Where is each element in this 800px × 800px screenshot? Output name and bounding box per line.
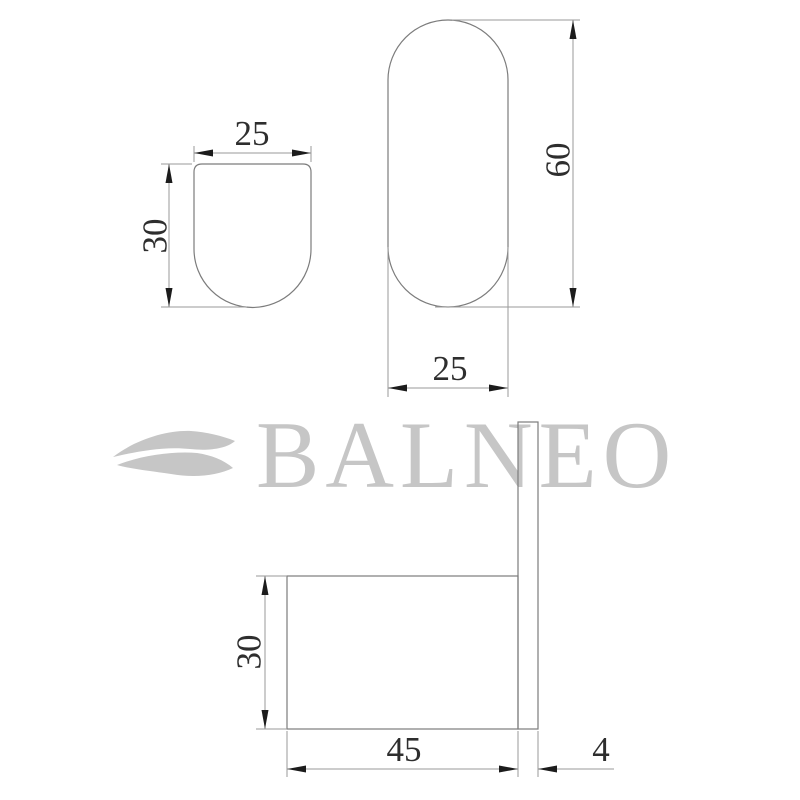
front-view: 25 30: [136, 114, 312, 307]
dimension-side-thickness: 4: [538, 730, 614, 777]
dimension-front-width: 25: [194, 114, 311, 162]
arrow-down-icon: [166, 288, 173, 307]
dim-label-side-thickness: 4: [592, 730, 610, 769]
arrow-right-icon: [292, 150, 311, 157]
arrow-down-icon: [570, 288, 577, 307]
arrow-up-icon: [570, 20, 577, 39]
arrow-down-icon: [262, 710, 269, 729]
front-view-outline: [194, 164, 311, 307]
hook-dimension-drawing: BALNEO 25 30: [0, 0, 800, 800]
arrow-up-icon: [262, 576, 269, 595]
arrow-left-icon: [194, 150, 213, 157]
arrow-left-icon: [388, 385, 407, 392]
technical-drawing-page: BALNEO 25 30: [0, 0, 800, 800]
wave-icon: [113, 431, 235, 476]
arrow-left-icon: [287, 766, 306, 773]
dimension-side-height: 30: [230, 576, 288, 729]
side-view-arm: [287, 576, 518, 729]
arrow-right-icon: [489, 385, 508, 392]
dimension-side-length: 45: [287, 730, 518, 777]
brand-name: BALNEO: [256, 402, 677, 508]
dim-label-front-width: 25: [235, 114, 270, 153]
balneo-logo: BALNEO: [113, 402, 677, 508]
dimension-profile-width: 25: [388, 247, 508, 397]
arrow-right-icon: [499, 766, 518, 773]
dim-label-profile-width: 25: [433, 349, 468, 388]
dimension-front-height: 30: [136, 164, 248, 307]
dim-label-side-length: 45: [387, 730, 422, 769]
dim-label-front-height: 30: [136, 219, 175, 254]
profile-view: 60 25: [388, 20, 580, 397]
arrow-up-icon: [166, 164, 173, 183]
arrow-left-icon: [538, 766, 557, 773]
dim-label-profile-height: 60: [539, 143, 578, 178]
profile-view-outline: [388, 20, 508, 307]
dim-label-side-height: 30: [230, 635, 269, 670]
wave-lower-swoosh: [117, 453, 233, 476]
